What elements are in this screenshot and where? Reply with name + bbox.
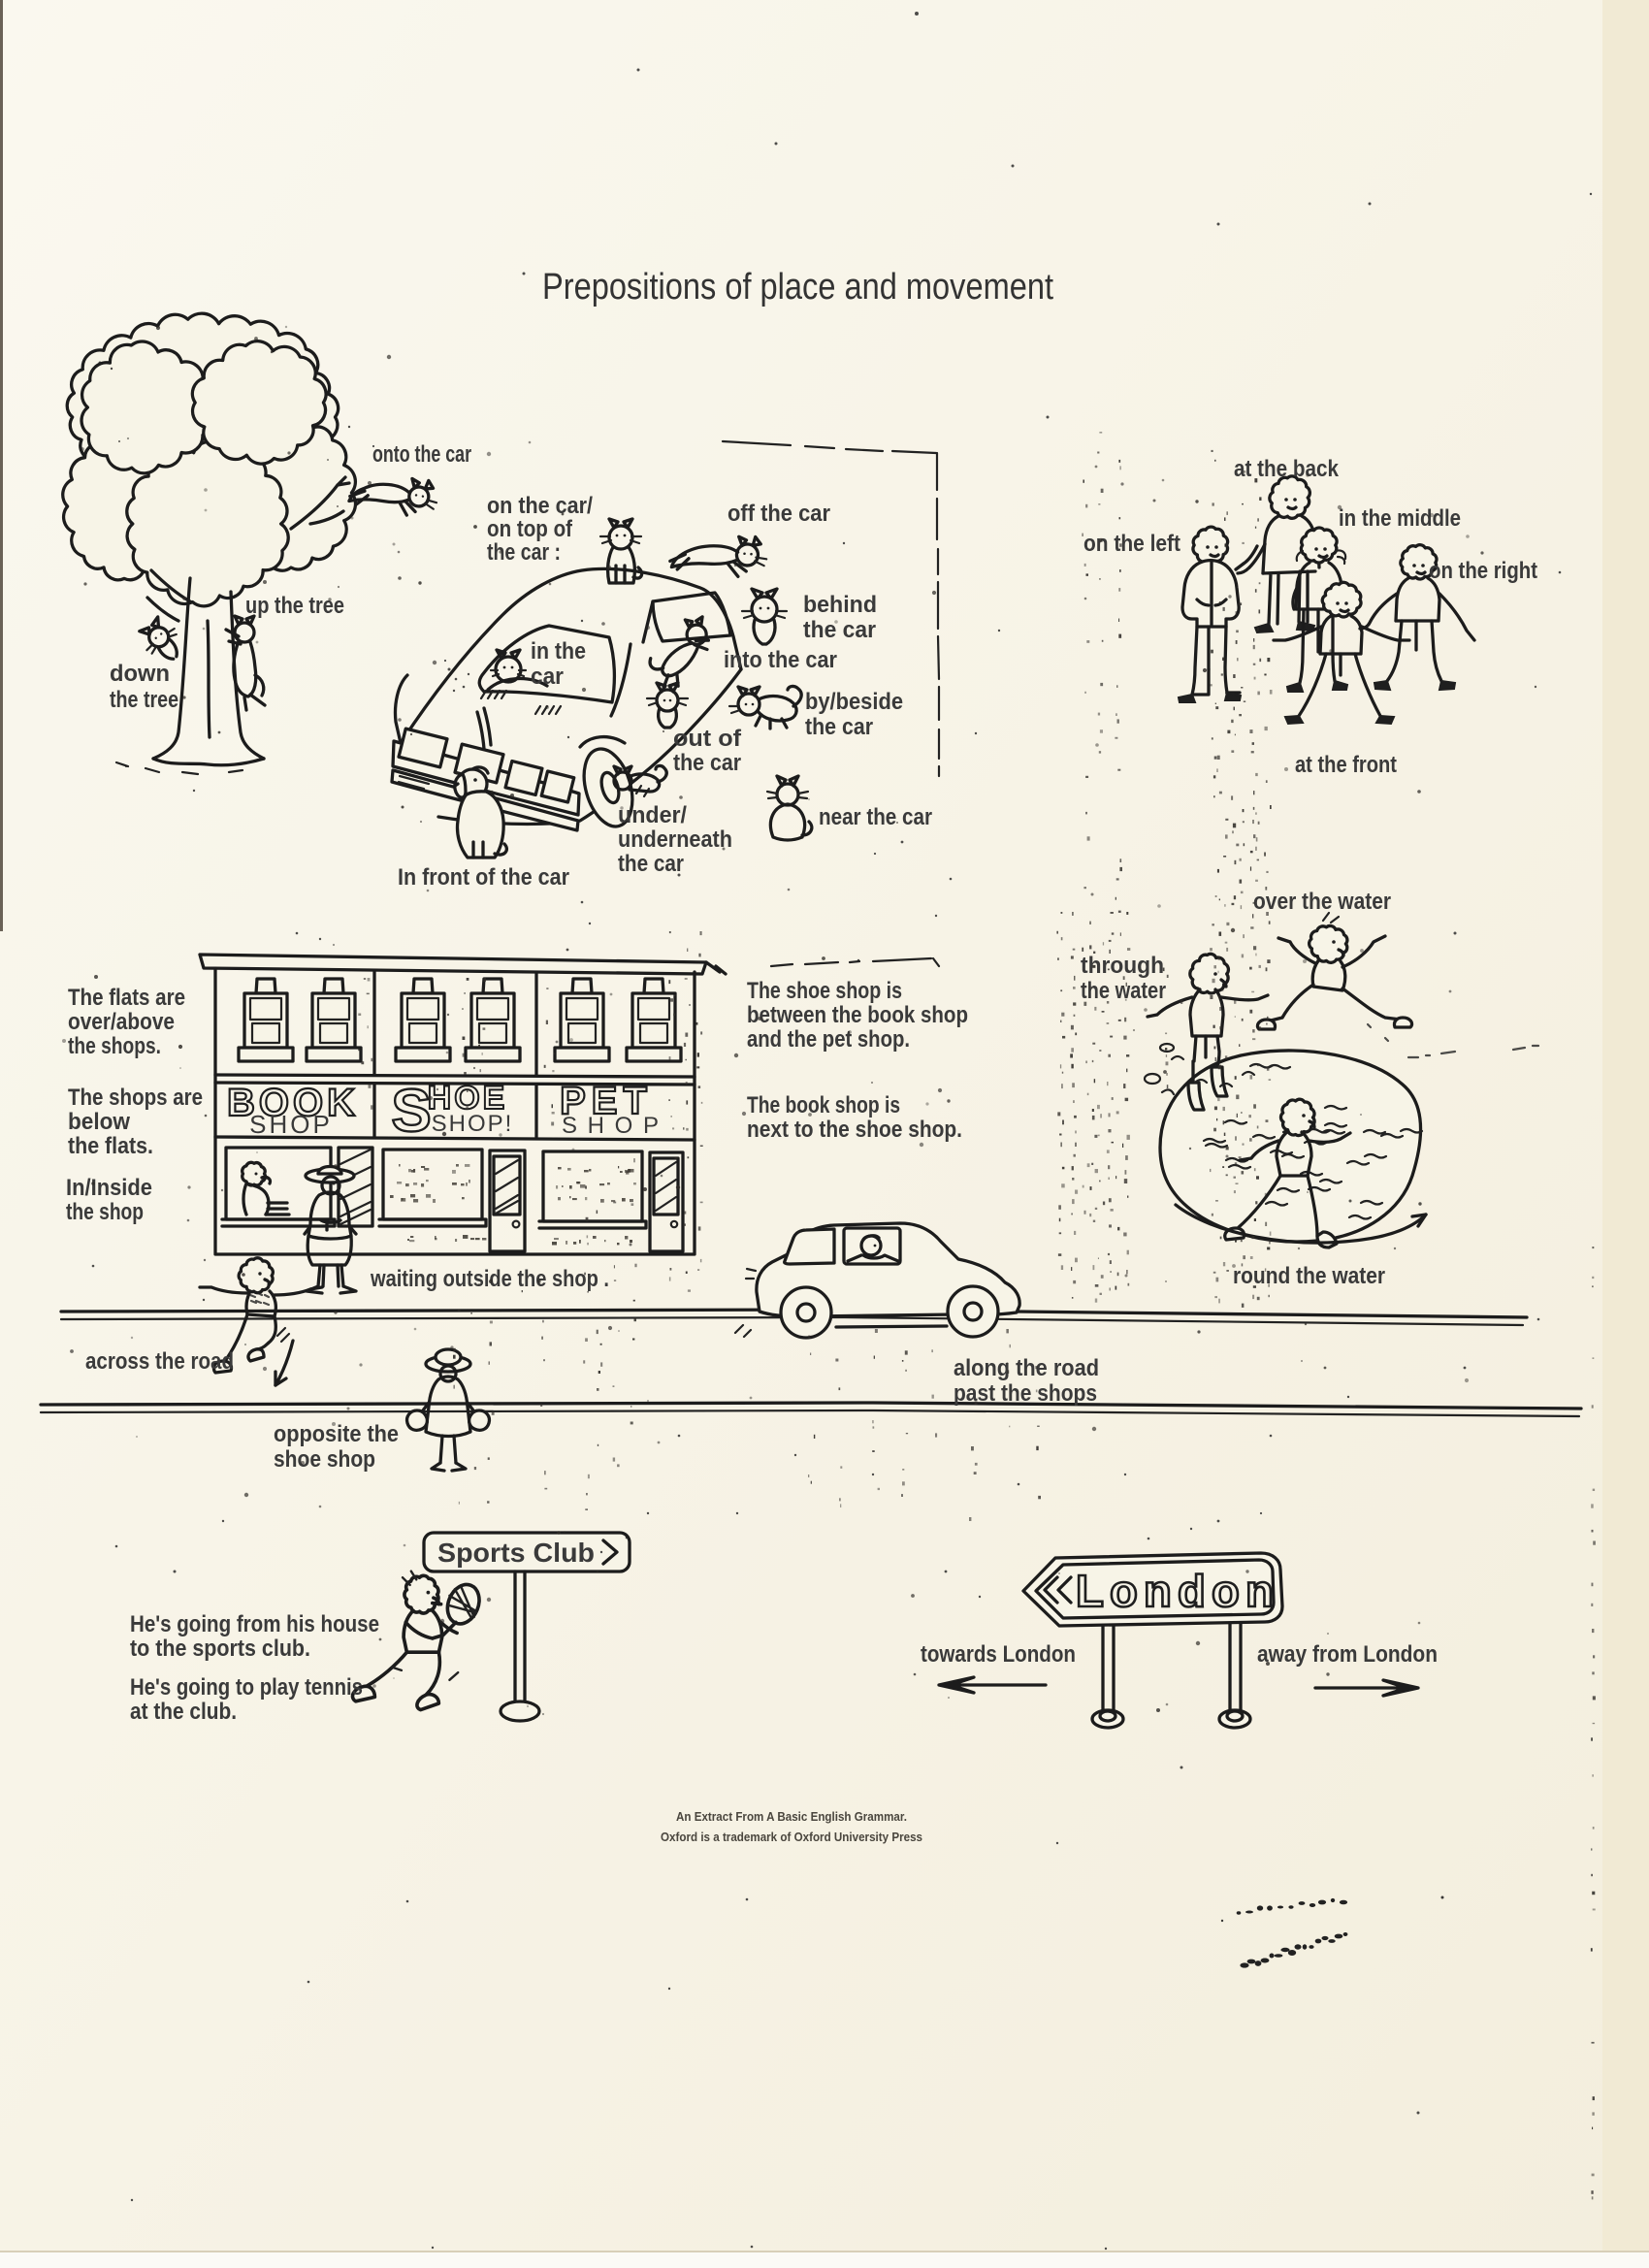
svg-text:SHOP: SHOP [249, 1110, 333, 1139]
svg-text:away from London: away from London [1257, 1641, 1438, 1668]
svg-text:round the water: round the water [1233, 1263, 1385, 1289]
svg-text:towards London: towards London [921, 1641, 1076, 1668]
svg-text:An Extract From A Basic Englis: An Extract From A Basic English Grammar. [676, 1809, 907, 1824]
svg-text:the shop: the shop [66, 1199, 144, 1225]
svg-text:in the middle: in the middle [1339, 505, 1461, 532]
svg-text:below: below [68, 1109, 130, 1135]
svg-text:up the tree: up the tree [245, 593, 344, 619]
svg-text:on the left: on the left [1083, 531, 1180, 557]
svg-text:across the road: across the road [85, 1348, 234, 1375]
svg-text:He's going to play tennis: He's going to play tennis [130, 1674, 363, 1701]
svg-text:off the car: off the car [727, 501, 830, 527]
svg-text:over the water: over the water [1253, 889, 1391, 915]
svg-text:Sports Club: Sports Club [437, 1538, 595, 1568]
svg-text:the car: the car [805, 714, 873, 740]
svg-text:at the club.: at the club. [130, 1699, 237, 1725]
svg-text:in the: in the [531, 638, 586, 664]
svg-text:S: S [391, 1078, 431, 1145]
svg-text:The shops are: The shops are [68, 1085, 203, 1111]
svg-text:out of: out of [673, 726, 742, 752]
svg-text:at the back: at the back [1234, 456, 1340, 482]
svg-text:Prepositions of place and move: Prepositions of place and movement [542, 267, 1053, 308]
svg-text:waiting outside the shop .: waiting outside the shop . [370, 1266, 609, 1292]
svg-text:along the road: along the road [954, 1355, 1099, 1381]
svg-text:the car: the car [673, 750, 741, 776]
svg-text:underneath: underneath [618, 826, 732, 853]
svg-text:In/Inside: In/Inside [66, 1175, 152, 1201]
svg-text:on the right: on the right [1429, 558, 1537, 584]
svg-text:the car: the car [803, 617, 876, 643]
svg-text:the flats.: the flats. [68, 1133, 153, 1159]
svg-text:to the sports club.: to the sports club. [130, 1636, 310, 1662]
svg-text:onto the car: onto the car [372, 441, 471, 468]
svg-text:The book shop is: The book shop is [747, 1092, 900, 1118]
svg-text:The flats are: The flats are [68, 985, 185, 1011]
svg-text:London: London [1076, 1566, 1279, 1616]
svg-text:on top of: on top of [487, 516, 573, 542]
svg-text:under/: under/ [618, 802, 687, 828]
svg-text:on the car/: on the car/ [487, 493, 593, 519]
svg-text:the car: the car [618, 851, 684, 877]
svg-text:the tree: the tree [110, 687, 178, 713]
svg-text:the car :: the car : [487, 539, 561, 566]
svg-text:shoe shop: shoe shop [274, 1446, 375, 1473]
svg-text:opposite the: opposite the [274, 1421, 399, 1447]
svg-text:and the pet shop.: and the pet shop. [747, 1026, 910, 1053]
svg-text:near the car: near the car [819, 804, 932, 830]
svg-text:into the car: into the car [724, 647, 837, 673]
svg-text:He's going from his house: He's going from his house [130, 1611, 379, 1637]
svg-text:between the book shop: between the book shop [747, 1002, 968, 1028]
svg-text:at the front: at the front [1295, 752, 1397, 778]
svg-text:over/above: over/above [68, 1009, 175, 1035]
svg-text:behind: behind [803, 592, 877, 618]
svg-text:by/beside: by/beside [805, 689, 903, 715]
svg-text:next to the shoe shop.: next to the shoe shop. [747, 1117, 962, 1143]
svg-text:down: down [110, 661, 170, 687]
svg-text:In front of the car: In front of the car [398, 864, 569, 891]
svg-text:the shops.: the shops. [68, 1033, 161, 1059]
svg-text:car: car [531, 664, 564, 690]
svg-text:the water: the water [1081, 978, 1166, 1004]
svg-text:S H O P: S H O P [562, 1113, 661, 1139]
svg-text:Oxford is a trademark of Oxfor: Oxford is a trademark of Oxford Universi… [661, 1830, 922, 1844]
svg-text:The shoe shop is: The shoe shop is [747, 978, 902, 1004]
